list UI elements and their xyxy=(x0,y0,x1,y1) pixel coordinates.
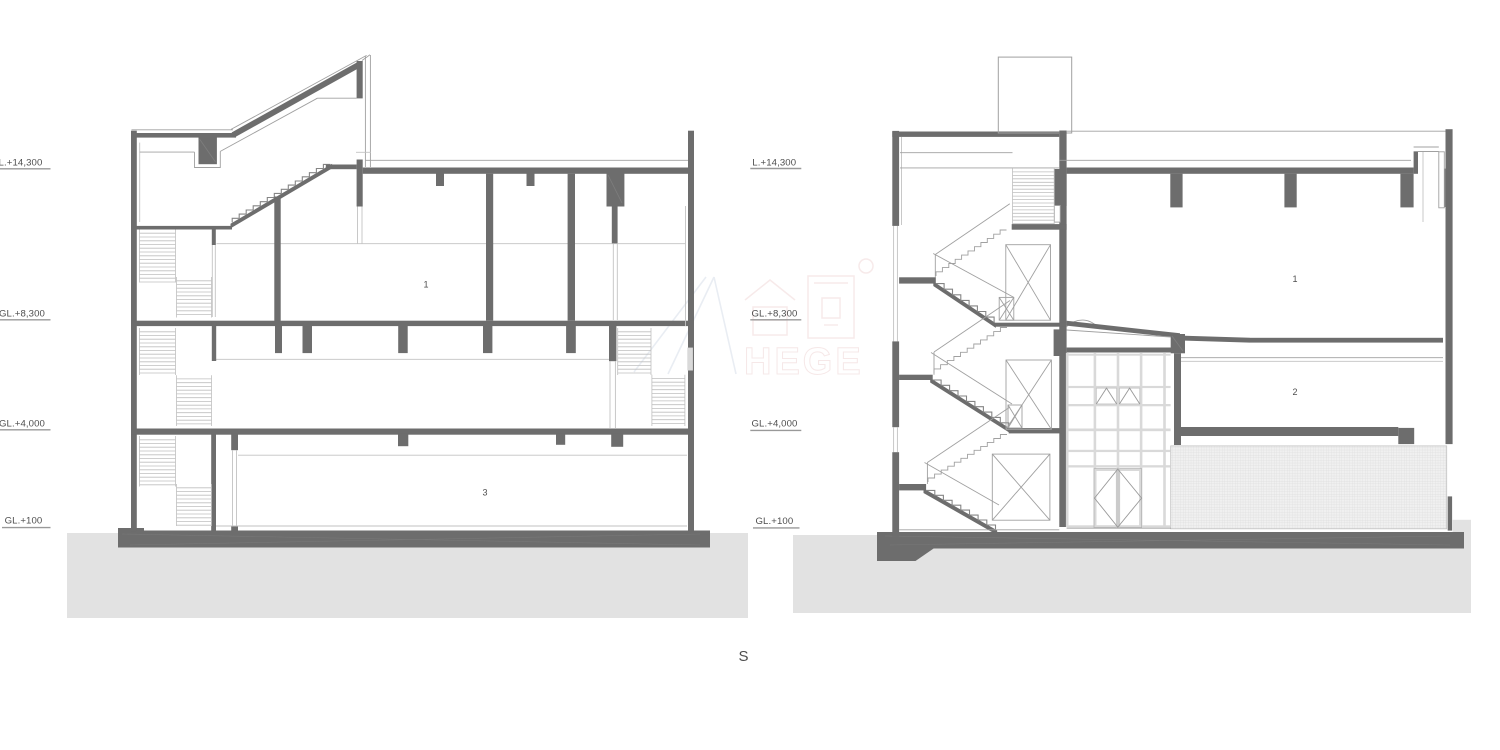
svg-text:GL.+8,300: GL.+8,300 xyxy=(0,308,45,319)
svg-text:GL.+14,300: GL.+14,300 xyxy=(0,158,42,169)
svg-text:1: 1 xyxy=(424,280,429,290)
svg-text:GL.+8,300: GL.+8,300 xyxy=(752,308,798,319)
svg-text:GL.+4,000: GL.+4,000 xyxy=(752,418,798,429)
svg-text:GL.+100: GL.+100 xyxy=(756,516,794,527)
svg-text:2: 2 xyxy=(1293,387,1298,397)
svg-text:1: 1 xyxy=(1293,274,1298,284)
svg-text:S: S xyxy=(739,648,749,665)
svg-text:3: 3 xyxy=(483,488,488,498)
svg-text:GL.+100: GL.+100 xyxy=(5,516,43,527)
svg-text:HEGE: HEGE xyxy=(744,341,864,383)
svg-text:L.+14,300: L.+14,300 xyxy=(752,158,796,169)
svg-text:GL.+4,000: GL.+4,000 xyxy=(0,418,45,429)
